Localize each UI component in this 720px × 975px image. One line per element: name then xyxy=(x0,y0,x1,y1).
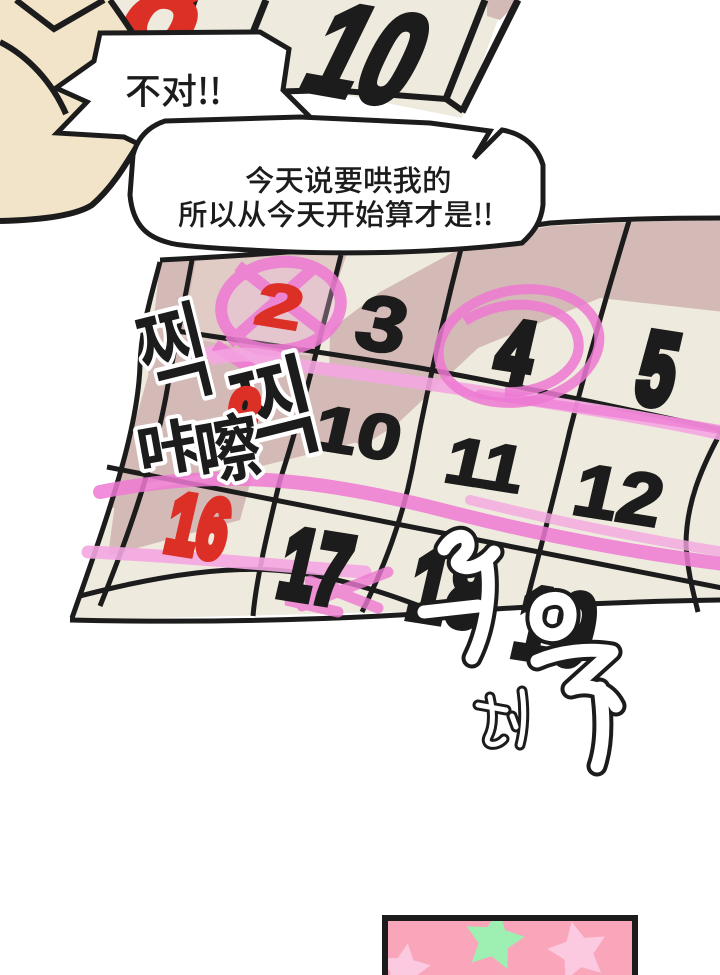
svg-text:12: 12 xyxy=(566,449,671,543)
svg-text:11: 11 xyxy=(438,423,532,507)
svg-text:10: 10 xyxy=(307,392,409,475)
